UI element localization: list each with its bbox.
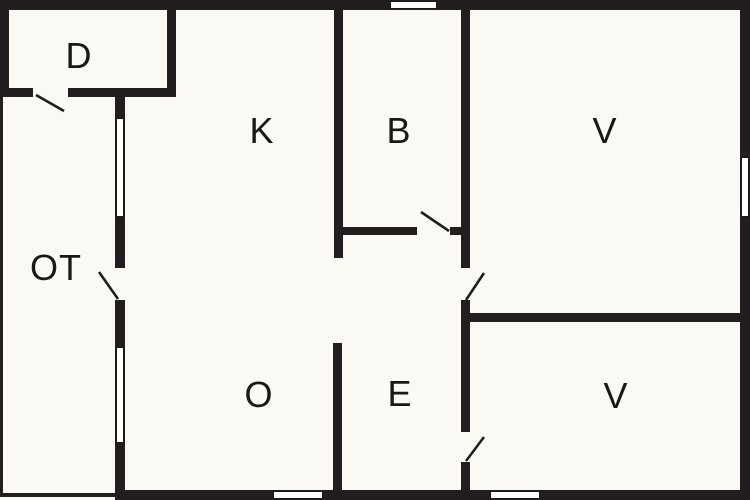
bath-door-gap bbox=[417, 227, 450, 235]
terrace-bottom-edge bbox=[0, 493, 115, 497]
d-bottom-wall bbox=[0, 88, 176, 97]
room-label-d-0: D bbox=[66, 38, 93, 74]
right-wall-window bbox=[741, 157, 749, 217]
door-swing-layer bbox=[0, 0, 750, 500]
left-wall-lower-window bbox=[116, 347, 124, 443]
top-wall-window bbox=[390, 1, 437, 9]
d-room-door-swing bbox=[36, 95, 64, 111]
v-rooms-divider-wall bbox=[461, 313, 750, 322]
d-left-wall bbox=[0, 0, 9, 97]
d-room-door-gap bbox=[33, 88, 68, 97]
bottom-wall-window-v bbox=[490, 491, 540, 499]
right-outer-wall bbox=[740, 0, 750, 500]
bottom-outer-wall bbox=[115, 490, 750, 500]
room-label-e-6: E bbox=[387, 376, 412, 412]
room-label-ot-4: OT bbox=[30, 250, 82, 286]
v-top-door-gap bbox=[461, 268, 470, 300]
entry-door-gap bbox=[115, 268, 125, 300]
kitchen-bath-wall bbox=[334, 10, 343, 258]
floor-plan: DKBVOTOEV bbox=[0, 0, 750, 500]
v-bottom-door-gap bbox=[461, 432, 470, 462]
top-outer-wall bbox=[0, 0, 750, 10]
bottom-wall-window-o bbox=[273, 491, 323, 499]
room-label-b-2: B bbox=[386, 113, 411, 149]
left-wall-upper-window bbox=[116, 118, 124, 217]
d-right-wall bbox=[167, 0, 176, 97]
o-e-divider-wall bbox=[333, 343, 342, 490]
room-label-v-3: V bbox=[592, 113, 617, 149]
terrace-left-edge bbox=[0, 97, 3, 497]
room-label-v-7: V bbox=[603, 378, 628, 414]
room-label-o-5: O bbox=[244, 377, 273, 413]
room-label-k-1: K bbox=[249, 113, 274, 149]
center-right-wall bbox=[461, 10, 470, 490]
